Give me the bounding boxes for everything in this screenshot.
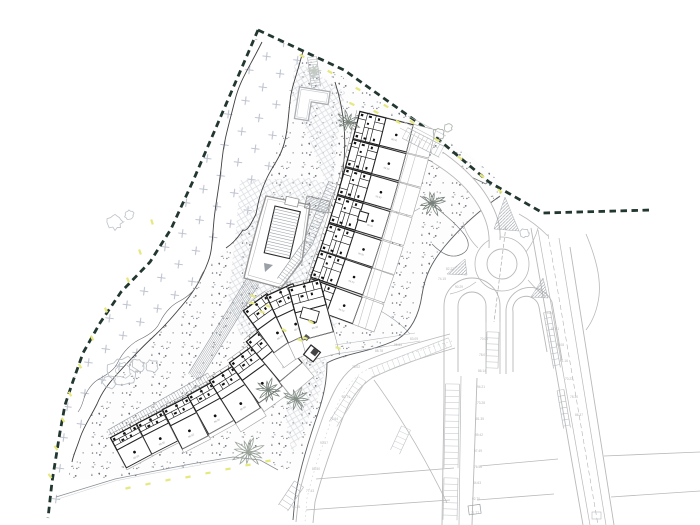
svg-text:90.29: 90.29	[455, 285, 463, 289]
svg-text:85.50: 85.50	[312, 467, 320, 471]
svg-text:93.57: 93.57	[320, 441, 328, 445]
svg-text:75.02: 75.02	[352, 365, 360, 369]
svg-text:86.37: 86.37	[575, 413, 583, 417]
svg-text:71.77: 71.77	[471, 511, 479, 515]
svg-text:74.15: 74.15	[438, 277, 446, 281]
svg-text:80.71: 80.71	[342, 395, 350, 399]
svg-text:87.01: 87.01	[551, 327, 559, 331]
svg-text:84.63: 84.63	[473, 481, 481, 485]
svg-text:77.43: 77.43	[306, 489, 314, 493]
svg-text:79.84: 79.84	[545, 311, 553, 315]
svg-text:72.64: 72.64	[330, 417, 338, 421]
svg-text:95.08: 95.08	[556, 343, 564, 347]
svg-text:82.22: 82.22	[446, 267, 454, 271]
svg-text:78.07: 78.07	[479, 353, 487, 357]
svg-text:76.56: 76.56	[474, 465, 482, 469]
svg-text:70.00: 70.00	[480, 337, 488, 341]
svg-text:81.35: 81.35	[476, 417, 484, 421]
svg-text:98.36: 98.36	[292, 505, 300, 509]
svg-text:78.30: 78.30	[570, 395, 578, 399]
svg-text:70.23: 70.23	[565, 377, 573, 381]
svg-text:89.42: 89.42	[475, 433, 483, 437]
svg-text:94.21: 94.21	[477, 385, 485, 389]
svg-text:97.49: 97.49	[474, 449, 482, 453]
svg-text:73.28: 73.28	[477, 401, 485, 405]
svg-text:83.09: 83.09	[410, 337, 418, 341]
svg-text:88.78: 88.78	[375, 349, 383, 353]
svg-text:92.70: 92.70	[472, 497, 480, 501]
svg-text:86.14: 86.14	[478, 369, 486, 373]
svg-text:91.16: 91.16	[560, 359, 568, 363]
